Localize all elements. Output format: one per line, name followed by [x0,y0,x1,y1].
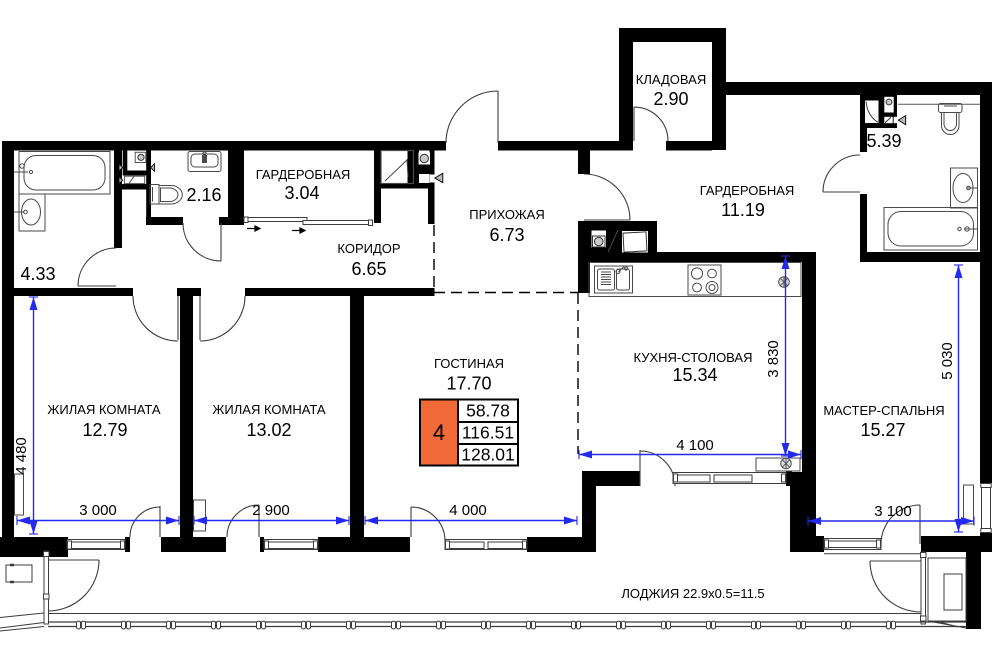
svg-text:4 000: 4 000 [449,502,487,519]
svg-text:4 480: 4 480 [13,437,30,475]
svg-text:2.16: 2.16 [186,185,221,205]
svg-text:ПРИХОЖАЯ: ПРИХОЖАЯ [469,207,545,222]
svg-text:5.39: 5.39 [866,131,901,151]
svg-text:58.78: 58.78 [466,401,510,421]
svg-text:ЛОДЖИЯ 22.9x0.5=11.5: ЛОДЖИЯ 22.9x0.5=11.5 [621,586,764,601]
svg-text:ЖИЛАЯ КОМНАТА: ЖИЛАЯ КОМНАТА [212,402,325,417]
svg-text:6.65: 6.65 [351,259,386,279]
svg-text:17.70: 17.70 [446,374,491,394]
svg-text:3 830: 3 830 [765,340,782,378]
svg-text:4: 4 [433,420,445,445]
svg-text:4 100: 4 100 [676,437,714,454]
svg-text:13.02: 13.02 [246,420,291,440]
svg-text:КОРИДОР: КОРИДОР [337,241,400,256]
svg-text:МАСТЕР-СПАЛЬНЯ: МАСТЕР-СПАЛЬНЯ [823,403,944,418]
svg-text:ГАРДЕРОБНАЯ: ГАРДЕРОБНАЯ [256,167,351,182]
svg-text:КЛАДОВАЯ: КЛАДОВАЯ [636,72,706,87]
svg-text:12.79: 12.79 [82,420,127,440]
svg-text:ЖИЛАЯ КОМНАТА: ЖИЛАЯ КОМНАТА [47,402,160,417]
svg-text:3 000: 3 000 [79,502,117,519]
svg-text:4.33: 4.33 [20,264,55,284]
svg-text:11.19: 11.19 [721,200,765,220]
svg-text:2.90: 2.90 [653,89,688,109]
svg-text:3 100: 3 100 [874,503,912,520]
svg-text:КУХНЯ-СТОЛОВАЯ: КУХНЯ-СТОЛОВАЯ [634,350,753,365]
svg-text:15.27: 15.27 [860,420,905,440]
svg-text:ГАРДЕРОБНАЯ: ГАРДЕРОБНАЯ [700,183,795,198]
svg-text:2 900: 2 900 [252,502,290,519]
svg-text:15.34: 15.34 [672,365,717,385]
svg-text:128.01: 128.01 [461,445,515,465]
svg-text:6.73: 6.73 [489,225,524,245]
svg-text:5 030: 5 030 [939,342,956,380]
svg-text:116.51: 116.51 [462,423,514,443]
svg-text:ГОСТИНАЯ: ГОСТИНАЯ [434,356,504,371]
svg-text:3.04: 3.04 [284,183,319,203]
